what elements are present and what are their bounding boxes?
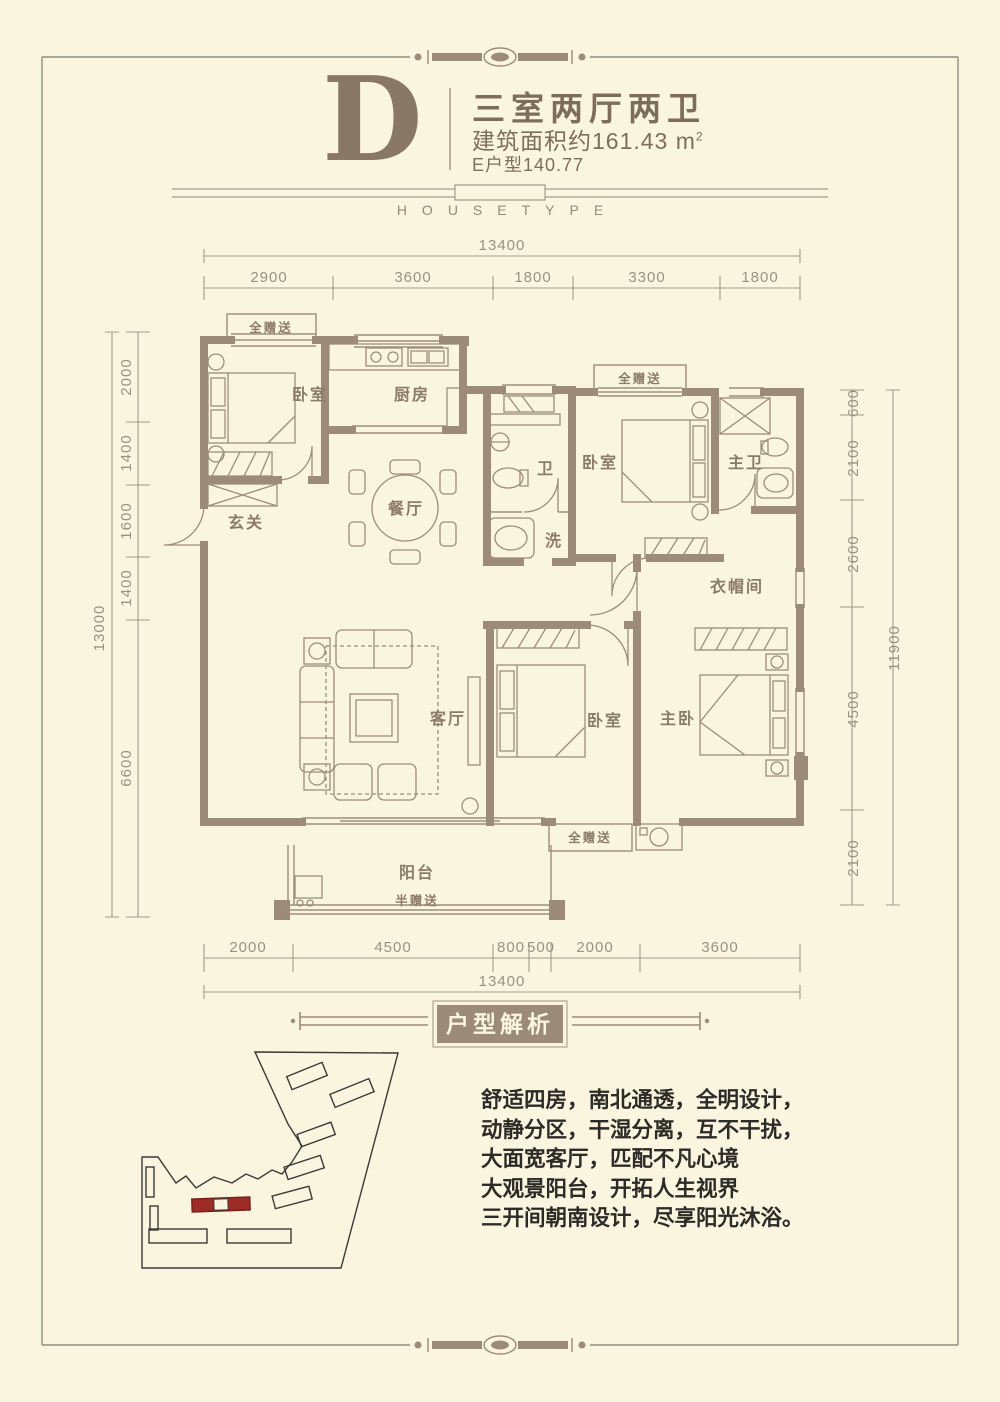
room-label-master-bedroom: 主卧 [660,709,696,728]
dim-top-total: 13400 [479,237,526,254]
top-ornament [415,48,586,66]
room-label-bath: 卫 [537,461,555,478]
bedroom-nw-door [278,446,312,480]
dim-left-5: 6600 [118,749,135,786]
dim-left-2: 1400 [118,434,135,471]
master-bath-door [719,474,755,510]
dim-top-5: 1800 [741,269,778,286]
dim-bottom-1: 2000 [229,939,266,956]
brochure-page: 13400 2900 3600 1800 3300 1800 2000 4500… [0,0,1000,1402]
header-divider [449,88,451,170]
bedroom-s-door [587,625,628,666]
housetype-divider [172,185,828,200]
housetype-label: HOUSETYPE [0,202,1000,218]
dim-left-total: 13000 [91,605,108,652]
room-label-balcony: 阳台 [399,863,435,882]
entry-door [164,505,204,545]
dim-left-3: 1600 [118,502,135,539]
description-line: 三开间朝南设计，尽享阳光沐浴。 [481,1204,804,1234]
dim-left-1: 2000 [118,358,135,395]
dim-left-4: 1400 [118,569,135,606]
room-label-bedroom-n: 卧室 [582,453,618,472]
dim-right-5: 2100 [845,839,862,876]
site-buildings [146,1062,374,1243]
room-label-master-bath: 主卫 [728,453,764,472]
plan-letter: D [322,62,423,178]
site-boundary [142,1052,398,1268]
room-label-cloakroom: 衣帽间 [710,577,764,596]
dim-top-2: 3600 [394,269,431,286]
wardrobe-cloakroom [695,628,787,650]
room-label-bedroom-nw: 卧室 [292,385,328,404]
bottom-ornament [415,1336,586,1354]
dim-bottom-2: 4500 [374,939,411,956]
bed-master [700,654,788,776]
master-bath-fixtures [720,398,793,498]
dim-bottom-6: 3600 [701,939,738,956]
dim-bottom-total: 13400 [479,973,526,990]
dim-right-total: 11900 [886,625,903,671]
kitchen-counter [329,344,462,428]
plan-area-sup: 2 [696,129,704,143]
dim-top-1: 2900 [250,269,287,286]
dim-right-2: 2100 [845,439,862,476]
description-line: 舒适四房，南北通透，全明设计， [481,1086,804,1116]
analysis-badge: 户型解析 [437,1005,563,1043]
wardrobe-s [497,628,579,648]
tv-stand [468,677,480,765]
gift-label-n: 全赠送 [617,371,662,386]
gift-label-balcony: 半赠送 [395,893,439,908]
gift-label-nw: 全赠送 [248,320,293,335]
room-label-dining: 餐厅 [387,499,424,518]
bed-s [497,665,585,757]
floor-drain [462,798,478,814]
bath-door [524,478,558,512]
dim-right-1: 600 [845,389,862,417]
room-label-foyer: 玄关 [228,513,264,532]
plan-subtitle: E户型140.77 [472,151,584,177]
sofa-set [300,630,438,800]
washer-s [636,824,682,850]
description-line: 大面宽客厅，匹配不凡心境 [481,1145,804,1175]
gift-label-s: 全赠送 [567,830,612,845]
dim-right-4: 4500 [845,690,862,727]
description-line: 动静分区，干湿分离，互不干扰， [481,1116,804,1146]
bed-nw [208,354,295,462]
analysis-description: 舒适四房，南北通透，全明设计， 动静分区，干湿分离，互不干扰， 大面宽客厅，匹配… [481,1086,804,1234]
room-label-kitchen: 厨房 [394,385,430,404]
room-label-bedroom-s: 卧室 [587,711,623,730]
site-plan [142,1052,398,1268]
balcony-equipment [295,876,322,906]
site-highlighted-building [192,1197,250,1212]
dim-bottom-5: 2000 [576,939,613,956]
cloakroom-door [590,568,637,615]
dim-right-3: 2600 [845,535,862,572]
dimension-labels: 13400 2900 3600 1800 3300 1800 2000 4500… [91,237,903,990]
room-label-living: 客厅 [430,709,466,728]
description-line: 大观景阳台，开拓人生视界 [481,1175,804,1205]
dim-top-4: 3300 [628,269,665,286]
room-label-wash: 洗 [545,531,563,550]
dim-bottom-3: 800 [497,939,525,956]
room-labels: 卧室 厨房 餐厅 玄关 卫 洗 卧室 主卫 衣帽间 客厅 卧室 主卧 阳台 [228,385,764,882]
dim-top-3: 1800 [514,269,551,286]
dim-bottom-4: 500 [527,939,555,956]
bed-n [622,402,708,520]
